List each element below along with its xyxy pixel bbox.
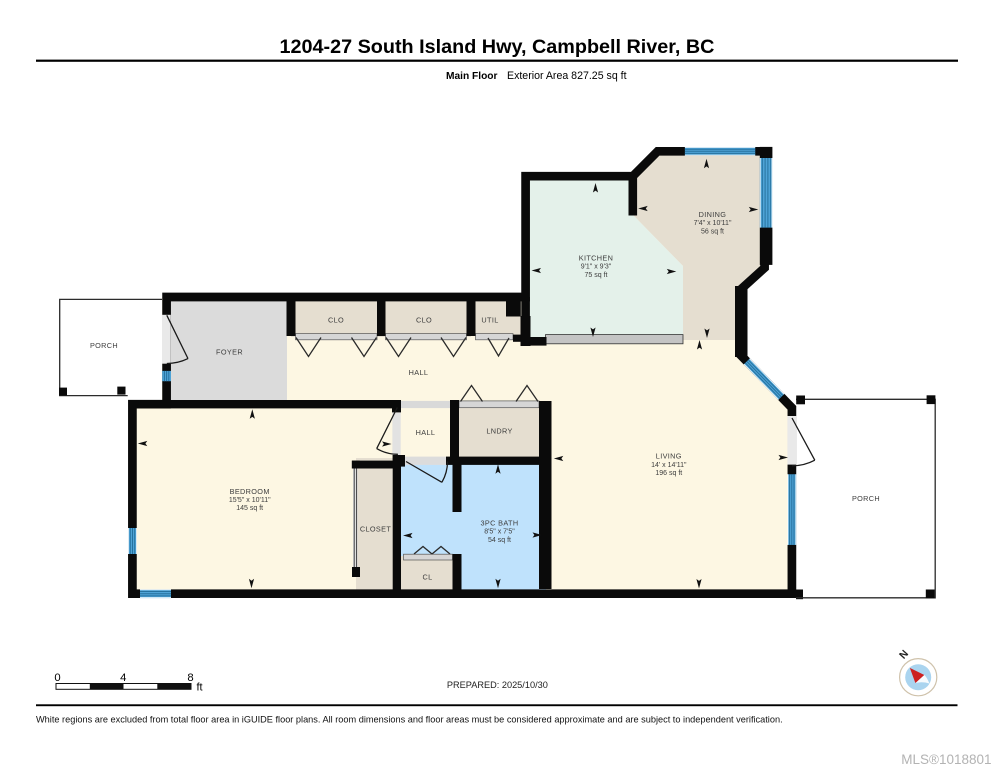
svg-text:196 sq ft: 196 sq ft — [655, 470, 682, 477]
svg-text:14' x 14'11": 14' x 14'11" — [651, 462, 687, 469]
svg-text:54 sq ft: 54 sq ft — [488, 537, 511, 544]
svg-text:145 sq ft: 145 sq ft — [236, 505, 263, 512]
svg-text:3PC BATH: 3PC BATH — [481, 519, 519, 528]
svg-text:UTIL: UTIL — [481, 316, 498, 325]
svg-text:White regions are excluded fro: White regions are excluded from total fl… — [36, 715, 783, 725]
svg-text:56 sq ft: 56 sq ft — [701, 228, 724, 235]
svg-text:PORCH: PORCH — [852, 494, 880, 503]
svg-text:PORCH: PORCH — [90, 341, 118, 350]
svg-text:LIVING: LIVING — [656, 452, 682, 461]
svg-text:8: 8 — [187, 672, 193, 684]
svg-text:CLO: CLO — [416, 316, 432, 325]
svg-text:CLO: CLO — [328, 316, 344, 325]
svg-text:75 sq ft: 75 sq ft — [585, 272, 608, 279]
svg-text:15'5" x 10'11": 15'5" x 10'11" — [229, 497, 271, 504]
svg-text:9'1" x 9'3": 9'1" x 9'3" — [581, 264, 612, 271]
svg-text:Exterior Area 827.25 sq ft: Exterior Area 827.25 sq ft — [507, 70, 627, 82]
svg-text:0: 0 — [54, 672, 60, 684]
svg-text:HALL: HALL — [416, 428, 436, 437]
svg-text:CLOSET: CLOSET — [360, 525, 391, 534]
svg-text:8'5" x 7'5": 8'5" x 7'5" — [484, 529, 515, 536]
svg-text:Main Floor: Main Floor — [446, 71, 498, 82]
svg-text:BEDROOM: BEDROOM — [230, 487, 270, 496]
svg-text:FOYER: FOYER — [216, 348, 243, 357]
svg-text:MLS®1018801: MLS®1018801 — [901, 752, 991, 767]
svg-text:7'4" x 10'11": 7'4" x 10'11" — [694, 220, 732, 227]
svg-text:4: 4 — [120, 672, 126, 684]
svg-text:ft: ft — [197, 682, 203, 694]
svg-text:PREPARED: 2025/10/30: PREPARED: 2025/10/30 — [447, 680, 548, 690]
svg-text:1204-27 South Island Hwy, Camp: 1204-27 South Island Hwy, Campbell River… — [280, 36, 715, 58]
svg-text:DINING: DINING — [699, 210, 727, 219]
svg-text:HALL: HALL — [409, 368, 429, 377]
svg-text:CL: CL — [422, 573, 432, 582]
svg-text:LNDRY: LNDRY — [486, 426, 512, 435]
svg-text:KITCHEN: KITCHEN — [579, 254, 613, 263]
